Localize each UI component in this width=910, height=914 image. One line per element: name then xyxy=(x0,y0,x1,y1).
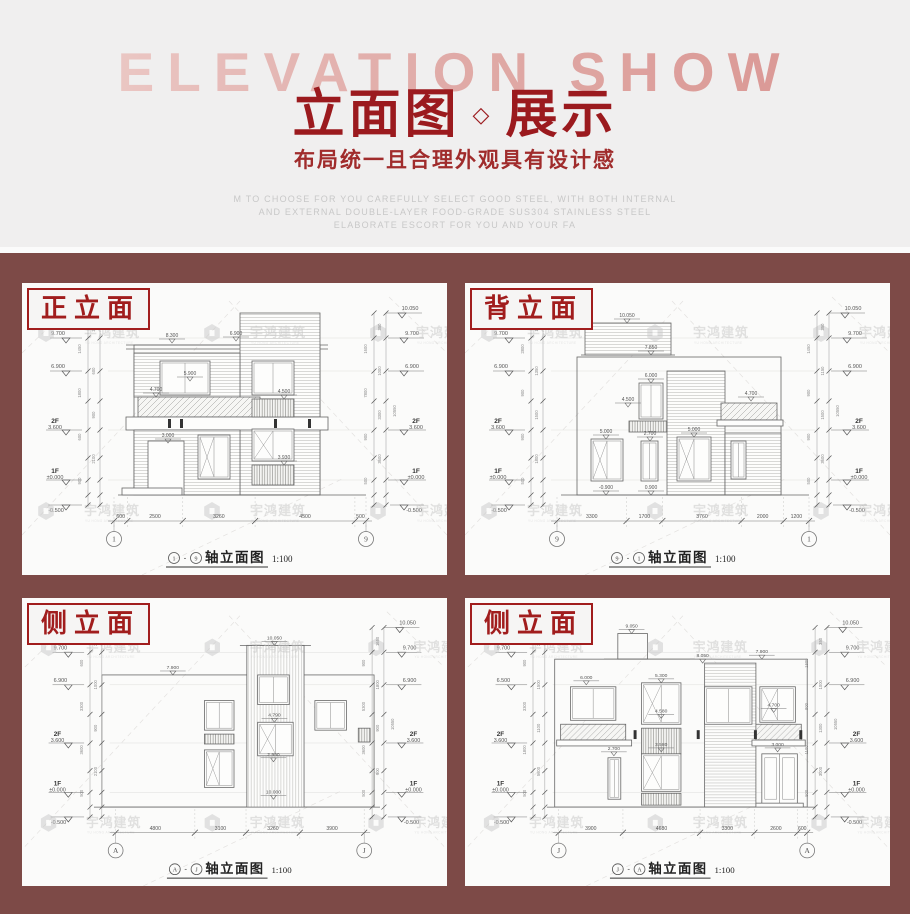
svg-text:500: 500 xyxy=(522,789,527,797)
svg-text:-: - xyxy=(184,865,187,874)
svg-text:600: 600 xyxy=(798,826,807,832)
svg-text:YU HONG ARCHITECTURE: YU HONG ARCHITECTURE xyxy=(87,655,135,659)
svg-text:3300: 3300 xyxy=(586,514,598,520)
svg-text:轴立面图: 轴立面图 xyxy=(205,860,264,876)
page: ELEVATION SHOW 立面图◇展示 布局统一且合理外观具有设计感 M T… xyxy=(0,0,910,914)
svg-text:2F: 2F xyxy=(855,418,863,425)
svg-text:900: 900 xyxy=(522,659,527,667)
svg-text:500: 500 xyxy=(79,789,84,797)
svg-text:10.050: 10.050 xyxy=(402,306,419,312)
svg-text:2.990: 2.990 xyxy=(267,752,280,758)
svg-text:6.000: 6.000 xyxy=(580,675,593,681)
svg-text:350: 350 xyxy=(818,637,823,645)
svg-text:轴立面图: 轴立面图 xyxy=(648,549,708,565)
svg-text:600: 600 xyxy=(77,433,82,441)
svg-text:8.300: 8.300 xyxy=(166,333,179,339)
divider xyxy=(0,247,910,253)
svg-text:10.000: 10.000 xyxy=(266,789,281,795)
svg-text:1: 1 xyxy=(173,556,176,562)
svg-text:900: 900 xyxy=(91,411,96,419)
svg-text:900: 900 xyxy=(363,433,368,441)
svg-text:0.900: 0.900 xyxy=(645,485,658,491)
svg-text:1500: 1500 xyxy=(820,410,825,420)
svg-text:500: 500 xyxy=(804,789,809,797)
svg-text:1:100: 1:100 xyxy=(271,865,292,875)
svg-text:6.000: 6.000 xyxy=(645,373,658,379)
svg-text:900: 900 xyxy=(520,389,525,397)
svg-text:宇鸿建筑: 宇鸿建筑 xyxy=(693,325,749,340)
svg-text:5600: 5600 xyxy=(536,766,541,776)
svg-text:10.050: 10.050 xyxy=(842,621,859,627)
svg-text:1000: 1000 xyxy=(93,680,98,690)
svg-text:1500: 1500 xyxy=(536,680,541,690)
svg-text:1450: 1450 xyxy=(806,344,811,354)
svg-text:-: - xyxy=(184,554,187,563)
svg-text:2F: 2F xyxy=(51,418,59,425)
svg-text:2000: 2000 xyxy=(757,514,769,520)
svg-text:A: A xyxy=(173,868,178,874)
svg-text:4.500: 4.500 xyxy=(278,389,291,395)
svg-text:3600: 3600 xyxy=(79,745,84,755)
svg-text:YU HONG ARCHITECTURE: YU HONG ARCHITECTURE xyxy=(415,655,447,659)
svg-text:4680: 4680 xyxy=(656,826,668,832)
svg-text:1800: 1800 xyxy=(522,745,527,755)
svg-text:宇鸿建筑: 宇鸿建筑 xyxy=(416,325,447,340)
svg-text:1800: 1800 xyxy=(375,680,380,690)
svg-text:宇鸿建筑: 宇鸿建筑 xyxy=(250,503,306,518)
svg-text:宇鸿建筑: 宇鸿建筑 xyxy=(86,815,141,830)
svg-text:7.900: 7.900 xyxy=(756,649,769,655)
svg-text:宇鸿建筑: 宇鸿建筑 xyxy=(529,815,584,830)
svg-text:2600: 2600 xyxy=(770,826,782,832)
svg-text:YU HONG ARCHITECTURE: YU HONG ARCHITECTURE xyxy=(860,519,890,523)
svg-text:3.000: 3.000 xyxy=(771,742,784,748)
svg-text:7.850: 7.850 xyxy=(645,345,658,351)
svg-text:9: 9 xyxy=(195,556,198,562)
svg-text:1800: 1800 xyxy=(77,388,82,398)
svg-text:YU HONG ARCHITECTURE: YU HONG ARCHITECTURE xyxy=(858,655,891,659)
svg-text:3600: 3600 xyxy=(377,454,382,464)
svg-text:1F: 1F xyxy=(412,468,420,475)
svg-text:宇鸿建筑: 宇鸿建筑 xyxy=(859,503,890,518)
svg-text:宇鸿建筑: 宇鸿建筑 xyxy=(857,639,890,654)
svg-text:轴立面图: 轴立面图 xyxy=(205,549,265,565)
svg-text:6.900: 6.900 xyxy=(846,678,860,684)
svg-text:4500: 4500 xyxy=(299,514,311,520)
panel-back-elevation: 背立面 9.7006.9002F3.6001F±0.000-0.50010.05… xyxy=(465,283,890,575)
svg-text:10550: 10550 xyxy=(390,718,395,730)
svg-text:1650: 1650 xyxy=(375,636,380,646)
svg-text:宇鸿建筑: 宇鸿建筑 xyxy=(250,325,306,340)
header: ELEVATION SHOW 立面图◇展示 布局统一且合理外观具有设计感 M T… xyxy=(0,0,910,247)
svg-text:1600: 1600 xyxy=(363,344,368,354)
svg-text:1350: 1350 xyxy=(534,366,539,376)
svg-text:4.500: 4.500 xyxy=(622,397,635,403)
svg-text:6.900: 6.900 xyxy=(403,678,417,684)
svg-text:2.700: 2.700 xyxy=(608,746,621,752)
description-line: M TO CHOOSE FOR YOU CAREFULLY SELECT GOO… xyxy=(0,193,910,206)
svg-text:1F: 1F xyxy=(494,468,502,475)
svg-text:宇鸿建筑: 宇鸿建筑 xyxy=(414,639,447,654)
svg-text:900: 900 xyxy=(806,389,811,397)
svg-text:900: 900 xyxy=(520,433,525,441)
svg-text:宇鸿建筑: 宇鸿建筑 xyxy=(414,815,447,830)
svg-text:A: A xyxy=(637,868,642,874)
svg-text:350: 350 xyxy=(377,323,382,331)
svg-text:3300: 3300 xyxy=(79,701,84,711)
svg-text:3300: 3300 xyxy=(722,826,734,832)
svg-text:1: 1 xyxy=(807,535,811,544)
svg-text:2500: 2500 xyxy=(149,514,161,520)
diamond-icon: ◇ xyxy=(473,102,494,127)
svg-text:3300: 3300 xyxy=(522,701,527,711)
svg-text:YU HONG ARCHITECTURE: YU HONG ARCHITECTURE xyxy=(858,831,891,835)
svg-text:500: 500 xyxy=(806,477,811,485)
svg-text:10550: 10550 xyxy=(833,718,838,730)
svg-text:7800: 7800 xyxy=(363,388,368,398)
svg-text:1:100: 1:100 xyxy=(715,554,736,564)
svg-text:10.050: 10.050 xyxy=(845,306,862,312)
svg-text:600: 600 xyxy=(91,367,96,375)
svg-text:1: 1 xyxy=(638,556,641,562)
svg-text:900: 900 xyxy=(804,702,809,710)
svg-text:3760: 3760 xyxy=(696,514,708,520)
svg-text:YU HONG ARCHITECTURE: YU HONG ARCHITECTURE xyxy=(251,655,299,659)
svg-text:3600: 3600 xyxy=(361,745,366,755)
svg-text:6.900: 6.900 xyxy=(848,364,862,370)
svg-text:3.000: 3.000 xyxy=(162,433,175,439)
page-title-main: 立面图 xyxy=(293,86,461,144)
svg-text:1150: 1150 xyxy=(820,366,825,376)
svg-text:900: 900 xyxy=(93,724,98,732)
svg-text:900: 900 xyxy=(375,724,380,732)
svg-text:9.050: 9.050 xyxy=(625,624,638,630)
svg-text:2F: 2F xyxy=(494,418,502,425)
svg-text:500: 500 xyxy=(520,477,525,485)
svg-text:4800: 4800 xyxy=(150,826,162,832)
svg-text:1: 1 xyxy=(112,535,116,544)
svg-text:6.900: 6.900 xyxy=(51,364,65,370)
svg-text:YU HONG ARCHITECTURE: YU HONG ARCHITECTURE xyxy=(85,341,134,345)
svg-text:1:100: 1:100 xyxy=(272,554,293,564)
svg-text:宇鸿建筑: 宇鸿建筑 xyxy=(857,815,890,830)
svg-text:J: J xyxy=(557,846,560,855)
svg-text:10550: 10550 xyxy=(835,405,840,417)
svg-text:9: 9 xyxy=(364,535,368,544)
svg-text:4.790: 4.790 xyxy=(268,712,281,718)
svg-text:6.900: 6.900 xyxy=(54,678,68,684)
svg-text:-: - xyxy=(627,554,630,563)
svg-text:9: 9 xyxy=(616,556,619,562)
svg-text:2800: 2800 xyxy=(520,344,525,354)
svg-text:900: 900 xyxy=(806,433,811,441)
svg-text:3900: 3900 xyxy=(326,826,338,832)
panel-label: 侧立面 xyxy=(27,603,150,645)
svg-text:1700: 1700 xyxy=(639,514,651,520)
page-description: M TO CHOOSE FOR YOU CAREFULLY SELECT GOO… xyxy=(0,193,910,232)
svg-text:4.700: 4.700 xyxy=(745,391,758,397)
svg-text:10.050: 10.050 xyxy=(619,313,635,319)
svg-text:1:100: 1:100 xyxy=(714,865,735,875)
svg-text:宇鸿建筑: 宇鸿建筑 xyxy=(693,815,748,830)
svg-text:1300: 1300 xyxy=(818,723,823,733)
svg-text:3260: 3260 xyxy=(213,514,225,520)
svg-text:3100: 3100 xyxy=(215,826,227,832)
svg-text:5.000: 5.000 xyxy=(600,429,613,435)
svg-text:4.580: 4.580 xyxy=(655,708,668,714)
description-line: AND EXTERNAL DOUBLE-LAYER FOOD-GRADE SUS… xyxy=(0,206,910,219)
svg-text:5.900: 5.900 xyxy=(184,371,197,377)
svg-text:500: 500 xyxy=(361,789,366,797)
svg-text:1800: 1800 xyxy=(534,454,539,464)
svg-text:宇鸿建筑: 宇鸿建筑 xyxy=(693,639,748,654)
svg-text:1000: 1000 xyxy=(818,680,823,690)
svg-text:10.050: 10.050 xyxy=(399,621,416,627)
svg-text:8.050: 8.050 xyxy=(696,653,709,659)
panel-label: 正立面 xyxy=(27,288,150,330)
svg-text:3000: 3000 xyxy=(818,766,823,776)
svg-text:J: J xyxy=(195,868,198,874)
svg-text:YU HONG ARCHITECTURE: YU HONG ARCHITECTURE xyxy=(251,341,300,345)
svg-text:7.900: 7.900 xyxy=(167,665,180,671)
svg-text:2.700: 2.700 xyxy=(644,431,657,437)
svg-text:A: A xyxy=(113,846,119,855)
page-title-suffix: 展示 xyxy=(505,86,617,144)
svg-text:6.900: 6.900 xyxy=(405,364,419,370)
svg-text:5.300: 5.300 xyxy=(655,673,668,679)
svg-text:10.050: 10.050 xyxy=(267,635,282,641)
svg-text:500: 500 xyxy=(363,477,368,485)
svg-text:轴立面图: 轴立面图 xyxy=(648,860,707,876)
svg-text:600: 600 xyxy=(116,514,125,520)
svg-text:500: 500 xyxy=(356,514,365,520)
svg-text:350: 350 xyxy=(820,323,825,331)
svg-text:900: 900 xyxy=(77,477,82,485)
svg-text:YU HONG ARCHITECTURE: YU HONG ARCHITECTURE xyxy=(530,655,578,659)
svg-text:YU HONG ARCHITECTURE: YU HONG ARCHITECTURE xyxy=(415,831,447,835)
svg-text:YU HONG ARCHITECTURE: YU HONG ARCHITECTURE xyxy=(528,341,577,345)
svg-text:4.700: 4.700 xyxy=(150,387,163,393)
svg-text:1100: 1100 xyxy=(536,723,541,733)
svg-text:1200: 1200 xyxy=(791,514,803,520)
svg-text:6.900: 6.900 xyxy=(494,364,508,370)
svg-text:3260: 3260 xyxy=(267,826,279,832)
panel-side-elevation-ja: 侧立面 9.7006.5002F3.6001F±0.000-0.50010.05… xyxy=(465,598,890,886)
svg-text:宇鸿建筑: 宇鸿建筑 xyxy=(84,503,140,518)
svg-text:1000: 1000 xyxy=(377,366,382,376)
svg-text:3300: 3300 xyxy=(377,410,382,420)
svg-text:宇鸿建筑: 宇鸿建筑 xyxy=(527,503,583,518)
svg-text:10550: 10550 xyxy=(392,405,397,417)
panel-side-elevation-aj: 侧立面 9.7006.9002F3.6001F±0.000-0.50010.05… xyxy=(22,598,447,886)
svg-text:YU HONG ARCHITECTURE: YU HONG ARCHITECTURE xyxy=(417,341,447,345)
svg-text:YU HONG ARCHITECTURE: YU HONG ARCHITECTURE xyxy=(694,341,743,345)
svg-text:6.900: 6.900 xyxy=(230,331,243,337)
svg-text:YU HONG ARCHITECTURE: YU HONG ARCHITECTURE xyxy=(860,341,890,345)
svg-text:600: 600 xyxy=(79,659,84,667)
svg-text:9: 9 xyxy=(555,535,559,544)
svg-text:1450: 1450 xyxy=(77,344,82,354)
svg-text:900: 900 xyxy=(375,767,380,775)
svg-text:YU HONG ARCHITECTURE: YU HONG ARCHITECTURE xyxy=(417,519,447,523)
svg-text:1F: 1F xyxy=(855,468,863,475)
svg-text:6.500: 6.500 xyxy=(497,678,511,684)
svg-text:2100: 2100 xyxy=(91,454,96,464)
panel-label: 背立面 xyxy=(470,288,593,330)
svg-text:-0.900: -0.900 xyxy=(599,485,613,491)
svg-text:1F: 1F xyxy=(51,468,59,475)
svg-text:J: J xyxy=(363,846,366,855)
svg-text:5.000: 5.000 xyxy=(688,427,701,433)
svg-text:3900: 3900 xyxy=(585,826,597,832)
svg-text:4.700: 4.700 xyxy=(768,702,781,708)
svg-text:5300: 5300 xyxy=(361,701,366,711)
svg-text:1500: 1500 xyxy=(804,658,809,668)
panel-label: 侧立面 xyxy=(470,603,593,645)
svg-text:2100: 2100 xyxy=(93,766,98,776)
svg-text:-: - xyxy=(627,865,630,874)
svg-text:3600: 3600 xyxy=(820,454,825,464)
svg-text:3.930: 3.930 xyxy=(278,455,291,461)
description-line: ELABORATE ESCORT FOR YOU AND YOUR FA xyxy=(0,219,910,232)
page-subtitle: 布局统一且合理外观具有设计感 xyxy=(0,144,910,174)
svg-text:3.580: 3.580 xyxy=(655,742,668,748)
svg-text:2F: 2F xyxy=(412,418,420,425)
svg-text:宇鸿建筑: 宇鸿建筑 xyxy=(859,325,890,340)
svg-text:1100: 1100 xyxy=(804,745,809,755)
panel-front-elevation: 正立面 9.7006.9002F3.6001F±0.000-0.50010.05… xyxy=(22,283,447,575)
svg-text:宇鸿建筑: 宇鸿建筑 xyxy=(416,503,447,518)
svg-text:A: A xyxy=(805,846,811,855)
page-title: 立面图◇展示 xyxy=(0,72,910,147)
svg-text:900: 900 xyxy=(361,659,366,667)
svg-text:1500: 1500 xyxy=(534,410,539,420)
